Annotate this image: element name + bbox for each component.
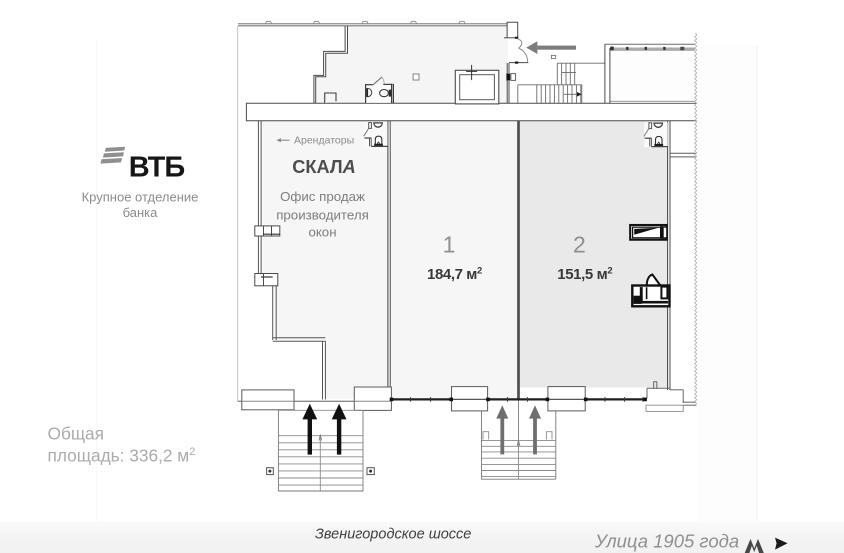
svg-text:ВТБ: ВТБ [129, 152, 185, 184]
svg-text:площадь: 336,2 м2: площадь: 336,2 м2 [48, 446, 196, 466]
svg-text:2: 2 [573, 232, 586, 258]
svg-text:Улица 1905 года: Улица 1905 года [594, 531, 739, 552]
svg-text:1: 1 [443, 232, 456, 258]
svg-text:производителя: производителя [276, 208, 369, 223]
svg-text:банка: банка [123, 205, 159, 220]
svg-text:151,5 м2: 151,5 м2 [557, 266, 612, 284]
svg-text:Общая: Общая [48, 424, 105, 444]
svg-text:Арендаторы: Арендаторы [294, 135, 354, 147]
svg-text:184,7 м2: 184,7 м2 [427, 266, 482, 284]
svg-text:СКАЛА: СКАЛА [292, 157, 356, 177]
svg-text:Офис продаж: Офис продаж [280, 189, 365, 204]
svg-text:окон: окон [308, 225, 336, 240]
svg-text:Звенигородское шоссе: Звенигородское шоссе [315, 527, 471, 543]
svg-text:Крупное отделение: Крупное отделение [82, 190, 199, 205]
